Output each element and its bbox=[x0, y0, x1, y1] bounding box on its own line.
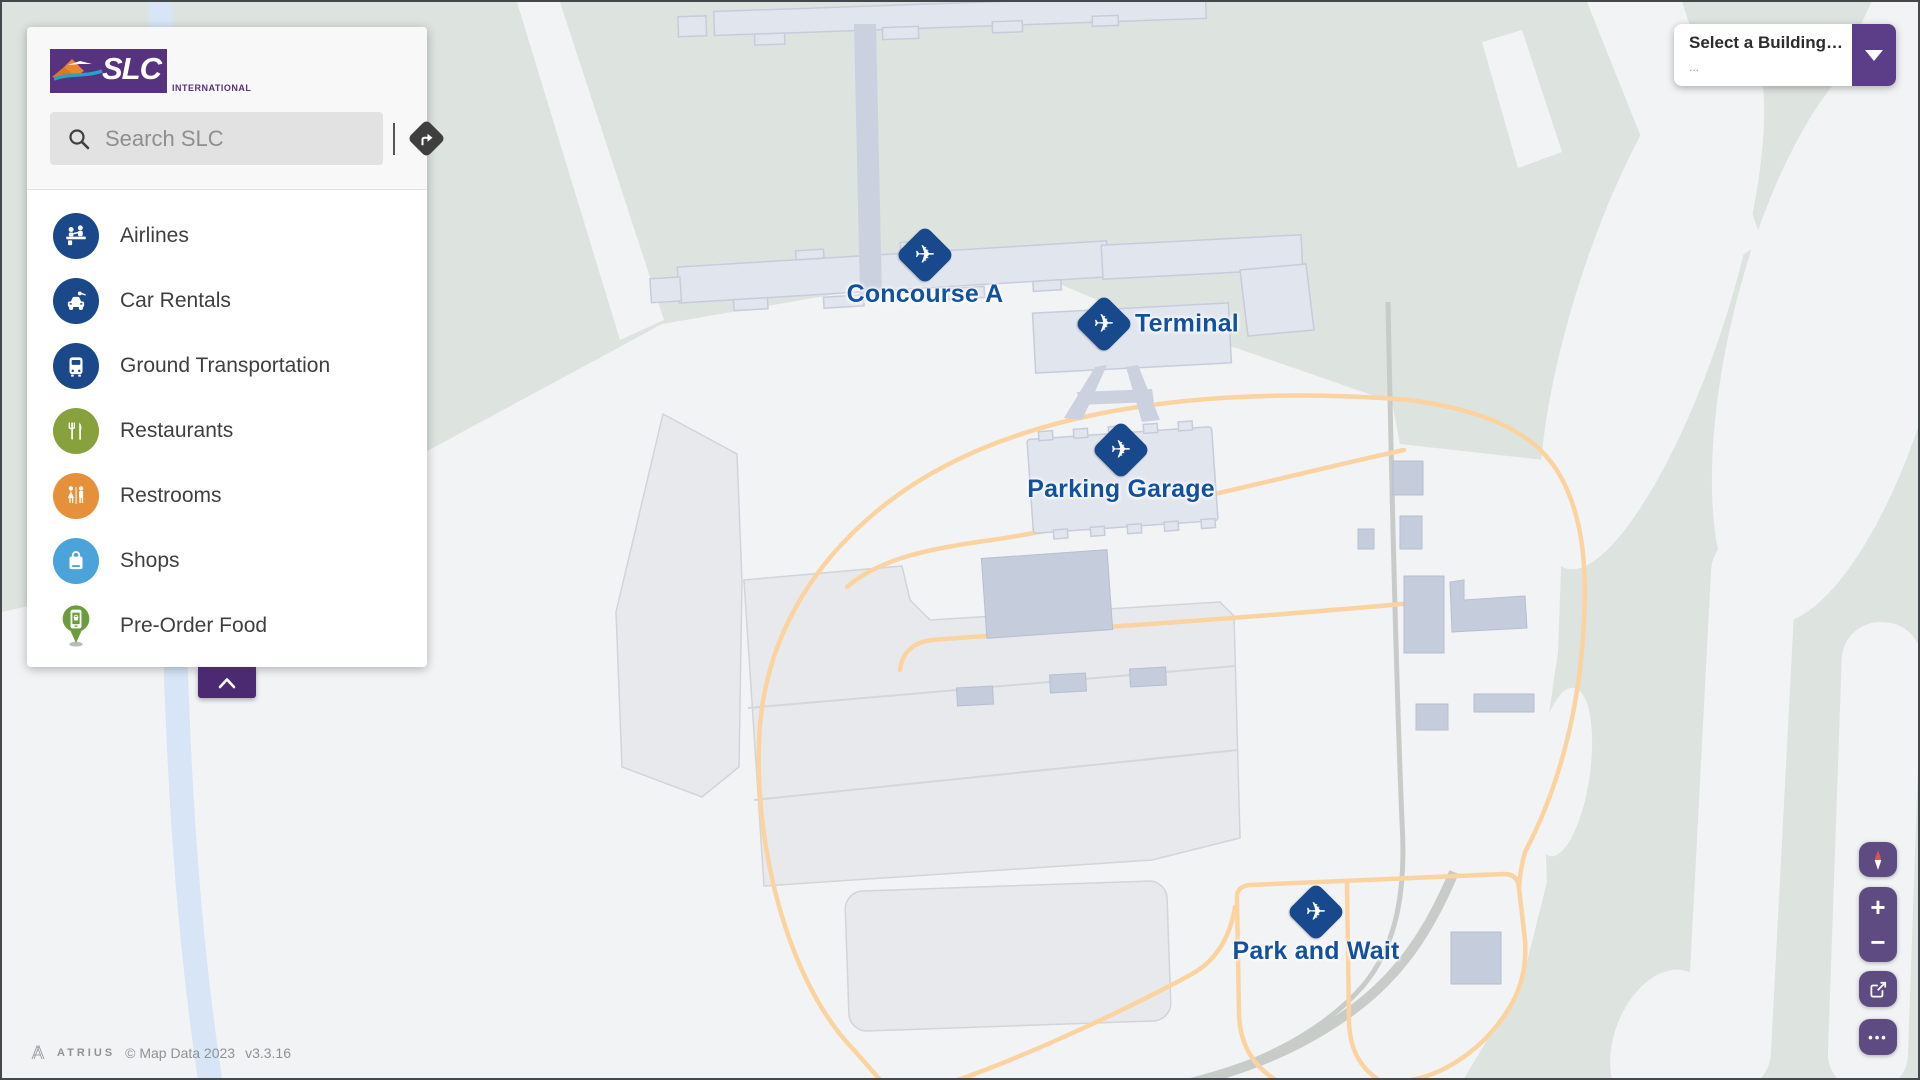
attribution-copyright: © Map Data 2023 bbox=[125, 1045, 235, 1061]
attribution-brand: ATRIUS bbox=[57, 1047, 115, 1059]
map-attribution: ATRIUS © Map Data 2023 v3.3.16 bbox=[30, 1044, 291, 1061]
bus-icon bbox=[53, 343, 99, 389]
sidebar-item-label: Car Rentals bbox=[120, 289, 231, 313]
airplane-icon: ✈ bbox=[1083, 303, 1125, 345]
airplane-icon: ✈ bbox=[1295, 891, 1337, 933]
marker-label: Parking Garage bbox=[1027, 475, 1215, 504]
fork-knife-icon bbox=[53, 408, 99, 454]
search-input[interactable] bbox=[105, 126, 393, 152]
sidebar-collapse-button[interactable] bbox=[198, 667, 256, 698]
chevron-up-icon bbox=[215, 675, 239, 691]
sidebar-item-pre-order-food[interactable]: Pre-Order Food bbox=[27, 593, 427, 658]
sidebar-header: SLC INTERNATIONAL bbox=[27, 27, 427, 190]
sidebar-item-car-rentals[interactable]: Car Rentals bbox=[27, 268, 427, 333]
sidebar-item-airlines[interactable]: Airlines bbox=[27, 203, 427, 268]
building-select-subtitle: ... bbox=[1689, 60, 1699, 74]
building-select-title: Select a Building… bbox=[1689, 33, 1843, 53]
airline-desk-icon bbox=[53, 213, 99, 259]
car-key-icon bbox=[53, 278, 99, 324]
man-woman-icon bbox=[53, 473, 99, 519]
directions-button[interactable] bbox=[395, 112, 457, 165]
search-icon bbox=[67, 127, 91, 151]
atrius-logo-icon bbox=[30, 1044, 47, 1061]
sidebar-menu: Airlines Car Rentals bbox=[27, 203, 427, 658]
share-button[interactable] bbox=[1859, 971, 1897, 1007]
airport-map-app: ✈ Concourse A ✈ Terminal ✈ Parking Garag… bbox=[0, 0, 1920, 1080]
sidebar-item-label: Restaurants bbox=[120, 419, 233, 443]
sidebar-item-label: Ground Transportation bbox=[120, 354, 330, 378]
marker-label: Park and Wait bbox=[1233, 937, 1400, 966]
sidebar-panel: SLC INTERNATIONAL bbox=[27, 27, 427, 667]
marker-label: Concourse A bbox=[847, 280, 1004, 309]
sidebar-item-label: Shops bbox=[120, 549, 180, 573]
attribution-version: v3.3.16 bbox=[245, 1045, 291, 1061]
building-select-dropdown-button[interactable] bbox=[1852, 24, 1896, 86]
shopping-bag-icon bbox=[53, 538, 99, 584]
marker-pin[interactable]: ✈ bbox=[895, 225, 954, 284]
zoom-in-button[interactable]: + bbox=[1859, 891, 1897, 923]
building-select-card: Select a Building… ... bbox=[1674, 24, 1896, 86]
compass-button[interactable] bbox=[1859, 842, 1897, 877]
airplane-icon: ✈ bbox=[1100, 429, 1142, 471]
external-link-icon bbox=[1869, 980, 1888, 999]
compass-icon bbox=[1868, 848, 1888, 872]
marker-label: Terminal bbox=[1135, 310, 1239, 339]
sidebar-item-label: Pre-Order Food bbox=[120, 614, 267, 638]
chevron-down-icon bbox=[1865, 50, 1883, 61]
airplane-icon: ✈ bbox=[904, 234, 946, 276]
slc-logo-text: SLC bbox=[102, 51, 161, 87]
sidebar-item-ground-transportation[interactable]: Ground Transportation bbox=[27, 333, 427, 398]
search-bar bbox=[50, 112, 383, 165]
sidebar-item-label: Restrooms bbox=[120, 484, 222, 508]
slc-logo-box: SLC bbox=[50, 49, 167, 93]
sidebar-item-restrooms[interactable]: Restrooms bbox=[27, 463, 427, 528]
marker-pin[interactable]: ✈ bbox=[1286, 882, 1345, 941]
directions-icon bbox=[407, 119, 445, 157]
sidebar-item-shops[interactable]: Shops bbox=[27, 528, 427, 593]
zoom-out-button[interactable]: − bbox=[1859, 926, 1897, 958]
marker-pin[interactable]: ✈ bbox=[1091, 420, 1150, 479]
sidebar-item-label: Airlines bbox=[120, 224, 189, 248]
slc-logo: SLC INTERNATIONAL bbox=[50, 49, 280, 95]
sidebar-item-restaurants[interactable]: Restaurants bbox=[27, 398, 427, 463]
phone-basket-pin-icon bbox=[53, 603, 99, 649]
zoom-control: + − bbox=[1859, 887, 1897, 962]
slc-logo-international: INTERNATIONAL bbox=[172, 83, 251, 93]
more-options-button[interactable]: ••• bbox=[1859, 1019, 1897, 1055]
marker-pin[interactable]: ✈ bbox=[1074, 294, 1133, 353]
